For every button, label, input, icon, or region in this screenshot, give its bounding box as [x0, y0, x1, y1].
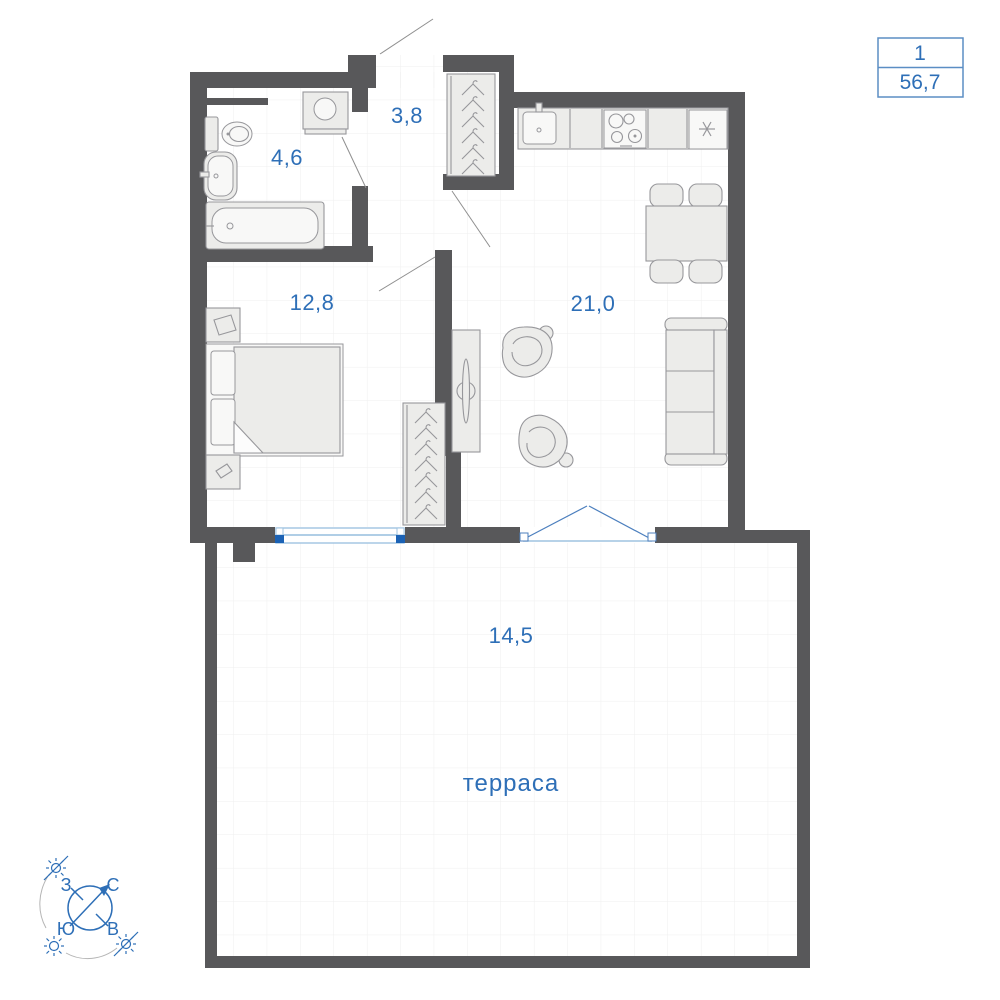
compass-south: Ю: [57, 919, 75, 939]
sofa: [665, 318, 727, 465]
wall-segment: [348, 55, 376, 88]
room-label-bedroom: 12,8: [290, 290, 335, 315]
fridge: [689, 110, 727, 149]
wall-segment: [352, 88, 368, 112]
dining-chair: [689, 260, 722, 283]
floor-plan-page: 4,6 3,8 12,8 21,0 14,5 терраса 1 56,7 З …: [0, 0, 1000, 1000]
hall-wardrobe: [447, 74, 495, 176]
room-label-terrace-name: терраса: [463, 770, 559, 797]
sun-icon: [44, 936, 64, 956]
bathroom-shelf: [206, 98, 268, 105]
room-label-bathroom: 4,6: [271, 145, 303, 170]
nightstand: [206, 308, 240, 342]
bathtub: [206, 202, 324, 249]
wall-segment: [190, 527, 275, 543]
wall-segment: [405, 527, 520, 543]
bed: [206, 344, 343, 456]
compass-east: В: [107, 919, 119, 939]
compass-rose: З С Ю В: [40, 856, 138, 959]
room-label-living-kitchen: 21,0: [571, 291, 616, 316]
compass-arrow-icon: [70, 890, 104, 926]
unit-badge: 1 56,7: [878, 38, 963, 97]
compass-north: С: [107, 875, 120, 895]
wall-segment: [655, 527, 745, 543]
compass-west: З: [61, 875, 72, 895]
room-label-terrace-area: 14,5: [489, 623, 534, 648]
bathroom-sink: [200, 152, 237, 200]
bedroom-wardrobe: [403, 403, 445, 525]
entrance-door-swing: [380, 19, 433, 54]
washing-machine: [303, 92, 348, 134]
dining-table: [646, 206, 727, 261]
tv-unit: [452, 330, 480, 452]
wall-segment: [233, 543, 255, 562]
badge-total-area: 56,7: [900, 71, 941, 94]
stove: [604, 110, 646, 148]
floor-plan-canvas: 4,6 3,8 12,8 21,0 14,5 терраса 1 56,7 З …: [0, 0, 1000, 1000]
wall-segment: [446, 450, 461, 535]
badge-rooms-count: 1: [914, 42, 926, 65]
dining-chair: [650, 184, 683, 207]
dining-chair: [689, 184, 722, 207]
dining-chair: [650, 260, 683, 283]
room-label-hallway: 3,8: [391, 103, 423, 128]
wall-segment: [740, 530, 800, 543]
wall-segment: [190, 72, 353, 88]
bedroom-window: [275, 527, 405, 543]
wall-segment: [728, 92, 745, 543]
wall-segment: [499, 55, 514, 190]
terrace-wall: [797, 530, 810, 968]
terrace-wall: [205, 956, 810, 968]
wall-segment: [352, 186, 368, 248]
terrace-wall: [205, 543, 217, 968]
nightstand: [206, 455, 240, 489]
